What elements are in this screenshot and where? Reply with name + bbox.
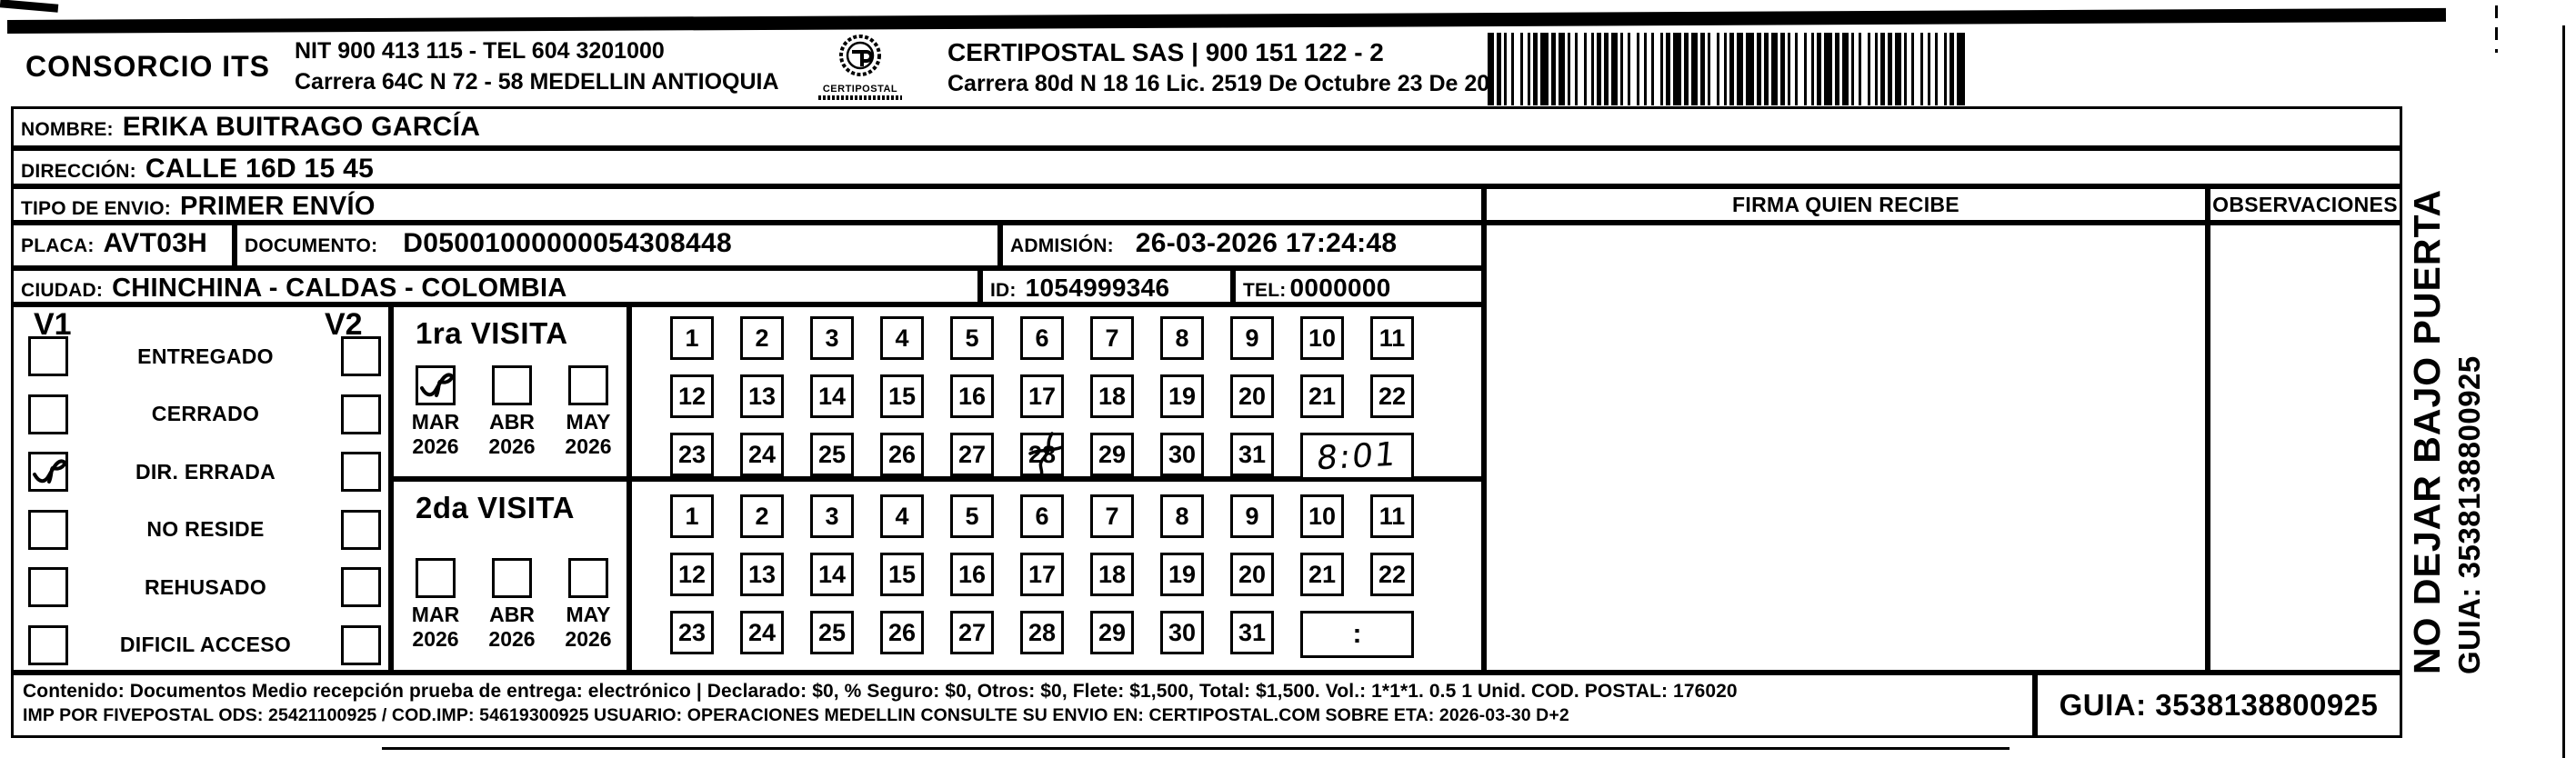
- visit2-day-27[interactable]: 27: [950, 611, 994, 654]
- visit1-months: MAR2026ABR2026MAY2026: [410, 365, 626, 459]
- visit1-day-28[interactable]: 28: [1020, 433, 1064, 476]
- visit2-day-23[interactable]: 23: [670, 611, 714, 654]
- footer-line1: Contenido: Documentos Medio recepción pr…: [14, 675, 2032, 703]
- field-ciudad-label: CIUDAD:: [21, 280, 103, 302]
- field-ciudad-value: CHINCHINA - CALDAS - COLOMBIA: [112, 274, 567, 304]
- visit1-day-13[interactable]: 13: [740, 374, 784, 418]
- v1-checkbox-dir-errada[interactable]: [28, 452, 68, 492]
- visit1-month-may: MAY2026: [563, 365, 614, 459]
- visit2-month-panel: 2da VISITA MAR2026ABR2026MAY2026: [391, 479, 629, 673]
- visit1-day-5[interactable]: 5: [950, 316, 994, 360]
- footer-line2: IMP POR FIVEPOSTAL ODS: 25421100925 / CO…: [14, 703, 2032, 726]
- firma-column-header: FIRMA QUIEN RECIBE: [1484, 186, 2208, 223]
- observaciones-column-header: OBSERVACIONES: [2208, 186, 2402, 223]
- visit1-day-22[interactable]: 22: [1370, 374, 1414, 418]
- field-id: ID: 1054999346: [980, 268, 1233, 304]
- visit2-time-box[interactable]: :: [1300, 611, 1414, 658]
- visit2-day-16[interactable]: 16: [950, 553, 994, 596]
- visit2-day-13[interactable]: 13: [740, 553, 784, 596]
- field-admision: ADMISIÓN: 26-03-2026 17:24:48: [1000, 223, 1484, 268]
- visit2-day-21[interactable]: 21: [1300, 553, 1344, 596]
- month-label: MAR: [412, 410, 459, 434]
- field-admision-label: ADMISIÓN:: [1010, 235, 1114, 257]
- visit2-day-grid: 1234567891011121314151617181920212223242…: [670, 494, 1481, 658]
- signature-area[interactable]: [1484, 223, 2208, 673]
- status-label-dir-errada: DIR. ERRADA: [70, 460, 341, 484]
- visit2-day-2[interactable]: 2: [740, 494, 784, 538]
- side-note-guia: GUIA: 3538138800925: [2452, 107, 2487, 674]
- field-nombre-label: NOMBRE:: [21, 119, 114, 141]
- v2-checkbox-dir-errada[interactable]: [341, 452, 381, 492]
- visit1-day-19[interactable]: 19: [1160, 374, 1204, 418]
- month-label: ABR: [489, 603, 535, 627]
- visit2-day-19[interactable]: 19: [1160, 553, 1204, 596]
- visit2-month-checkbox-may[interactable]: [568, 558, 608, 598]
- barcode: [1488, 33, 1968, 105]
- field-placa-label: PLACA:: [21, 235, 95, 257]
- visit2-day-11[interactable]: 11: [1370, 494, 1414, 538]
- visit1-time-handwritten: 8:01: [1315, 435, 1398, 477]
- delivery-status-panel: V1 V2 ENTREGADOCERRADODIR. ERRADANO RESI…: [11, 304, 391, 673]
- footer-summary: Contenido: Documentos Medio recepción pr…: [11, 673, 2035, 738]
- visit1-day-grid-panel: 1234567891011121314151617181920212223242…: [629, 304, 1484, 479]
- visit1-day-grid: 1234567891011121314151617181920212223242…: [670, 316, 1481, 480]
- visit1-day-3[interactable]: 3: [810, 316, 854, 360]
- status-options: ENTREGADOCERRADODIR. ERRADANO RESIDEREHU…: [14, 336, 388, 665]
- visit1-day-23[interactable]: 23: [670, 433, 714, 476]
- field-id-value: 1054999346: [1026, 274, 1170, 303]
- visit1-day-4[interactable]: 4: [880, 316, 924, 360]
- carrier-logo-caption: CERTIPOSTAL: [815, 84, 906, 95]
- visit2-day-15[interactable]: 15: [880, 553, 924, 596]
- v1-checkbox-rehusado[interactable]: [28, 567, 68, 607]
- visit1-month-abr: ABR2026: [486, 365, 537, 459]
- visit1-day-17[interactable]: 17: [1020, 374, 1064, 418]
- visit2-day-9[interactable]: 9: [1230, 494, 1274, 538]
- guia-number-box: GUIA: 3538138800925: [2035, 673, 2402, 738]
- visit2-day-31[interactable]: 31: [1230, 611, 1274, 654]
- visit1-title: 1ra VISITA: [394, 307, 626, 351]
- field-direccion-value: CALLE 16D 15 45: [145, 154, 374, 185]
- visit2-month-checkbox-mar[interactable]: [416, 558, 456, 598]
- field-placa-value: AVT03H: [104, 228, 208, 259]
- visit2-day-18[interactable]: 18: [1090, 553, 1134, 596]
- carrier-logo-icon: [815, 33, 906, 84]
- visit1-day-1[interactable]: 1: [670, 316, 714, 360]
- month-year: 2026: [488, 627, 535, 652]
- sender-address-line: Carrera 64C N 72 - 58 MEDELLIN ANTIOQUIA: [295, 69, 779, 95]
- visit2-month-checkbox-abr[interactable]: [492, 558, 532, 598]
- visit1-day-25[interactable]: 25: [810, 433, 854, 476]
- visit1-month-mar: MAR2026: [410, 365, 461, 459]
- month-label: MAY: [566, 410, 611, 434]
- visit2-day-1[interactable]: 1: [670, 494, 714, 538]
- scan-top-bar: [7, 8, 2446, 34]
- visit2-months: MAR2026ABR2026MAY2026: [410, 558, 626, 652]
- field-nombre: NOMBRE: ERIKA BUITRAGO GARCÍA: [11, 106, 2402, 148]
- visit1-day-21[interactable]: 21: [1300, 374, 1344, 418]
- field-tel: TEL: 0000000: [1233, 268, 1484, 304]
- visit2-day-17[interactable]: 17: [1020, 553, 1064, 596]
- visit2-day-29[interactable]: 29: [1090, 611, 1134, 654]
- sender-company-name: CONSORCIO ITS: [25, 50, 270, 84]
- carrier-logo: CERTIPOSTAL: [815, 33, 906, 100]
- visit2-title: 2da VISITA: [394, 482, 626, 525]
- visit1-day-15[interactable]: 15: [880, 374, 924, 418]
- visit2-day-6[interactable]: 6: [1020, 494, 1064, 538]
- scan-bottom-stray-line: [382, 747, 2010, 750]
- visit1-day-24[interactable]: 24: [740, 433, 784, 476]
- visit1-day-30[interactable]: 30: [1160, 433, 1204, 476]
- visit2-day-7[interactable]: 7: [1090, 494, 1134, 538]
- visit1-month-checkbox-mar[interactable]: [416, 365, 456, 405]
- v1-checkbox-no-reside[interactable]: [28, 510, 68, 550]
- visit1-day-7[interactable]: 7: [1090, 316, 1134, 360]
- visit1-day-16[interactable]: 16: [950, 374, 994, 418]
- month-label: MAY: [566, 603, 611, 627]
- visit2-day-30[interactable]: 30: [1160, 611, 1204, 654]
- visit1-day-9[interactable]: 9: [1230, 316, 1274, 360]
- status-label-dificil-acceso: DIFICIL ACCESO: [70, 633, 341, 657]
- field-direccion: DIRECCIÓN: CALLE 16D 15 45: [11, 148, 2402, 186]
- side-note-warning: NO DEJAR BAJO PUERTA: [2406, 107, 2449, 674]
- month-year: 2026: [412, 434, 458, 459]
- side-note: NO DEJAR BAJO PUERTA GUIA: 3538138800925: [2406, 107, 2487, 674]
- visit2-day-10[interactable]: 10: [1300, 494, 1344, 538]
- visit2-day-12[interactable]: 12: [670, 553, 714, 596]
- field-tipo-envio: TIPO DE ENVIO: PRIMER ENVÍO: [11, 186, 1484, 223]
- visit1-day-10[interactable]: 10: [1300, 316, 1344, 360]
- month-label: ABR: [489, 410, 535, 434]
- month-year: 2026: [565, 434, 611, 459]
- month-year: 2026: [565, 627, 611, 652]
- v1-checkbox-cerrado[interactable]: [28, 394, 68, 434]
- visit1-time-box[interactable]: 8:01: [1300, 433, 1414, 480]
- month-year: 2026: [488, 434, 535, 459]
- v2-checkbox-rehusado[interactable]: [341, 567, 381, 607]
- v1-checkbox-entregado[interactable]: [28, 336, 68, 376]
- visit2-day-14[interactable]: 14: [810, 553, 854, 596]
- field-placa: PLACA: AVT03H: [11, 223, 235, 268]
- v1-checkbox-dificil-acceso[interactable]: [28, 625, 68, 665]
- visit2-month-may: MAY2026: [563, 558, 614, 652]
- field-documento-label: DOCUMENTO:: [245, 235, 377, 257]
- scan-top-left-smudge: [0, 0, 58, 13]
- visit1-month-checkbox-may[interactable]: [568, 365, 608, 405]
- status-label-cerrado: CERRADO: [70, 402, 341, 426]
- visit2-day-28[interactable]: 28: [1020, 611, 1064, 654]
- field-direccion-label: DIRECCIÓN:: [21, 161, 136, 183]
- visit2-day-grid-panel: 1234567891011121314151617181920212223242…: [629, 479, 1484, 673]
- scan-right-edge-line: [2562, 25, 2565, 758]
- visit2-day-20[interactable]: 20: [1230, 553, 1274, 596]
- status-row-cerrado: CERRADO: [14, 394, 388, 434]
- scan-top-right-dashes: [2495, 5, 2498, 53]
- visit1-day-31[interactable]: 31: [1230, 433, 1274, 476]
- field-tipo-envio-label: TIPO DE ENVIO:: [21, 198, 171, 220]
- visit2-month-mar: MAR2026: [410, 558, 461, 652]
- status-row-rehusado: REHUSADO: [14, 567, 388, 607]
- visit1-month-panel: 1ra VISITA MAR2026ABR2026MAY2026: [391, 304, 629, 479]
- carrier-address-line: Carrera 80d N 18 16 Lic. 2519 De Octubre…: [947, 71, 1515, 97]
- visit1-day-12[interactable]: 12: [670, 374, 714, 418]
- visit2-day-22[interactable]: 22: [1370, 553, 1414, 596]
- status-row-dificil-acceso: DIFICIL ACCESO: [14, 625, 388, 665]
- field-nombre-value: ERIKA BUITRAGO GARCÍA: [123, 112, 481, 143]
- status-label-entregado: ENTREGADO: [70, 344, 341, 369]
- visit1-day-18[interactable]: 18: [1090, 374, 1134, 418]
- field-id-label: ID:: [990, 280, 1017, 302]
- status-row-entregado: ENTREGADO: [14, 336, 388, 376]
- status-row-dir-errada: DIR. ERRADA: [14, 452, 388, 492]
- visit1-day-11[interactable]: 11: [1370, 316, 1414, 360]
- visit1-day-26[interactable]: 26: [880, 433, 924, 476]
- visit2-day-4[interactable]: 4: [880, 494, 924, 538]
- status-label-no-reside: NO RESIDE: [70, 517, 341, 542]
- v2-checkbox-no-reside[interactable]: [341, 510, 381, 550]
- visit2-day-25[interactable]: 25: [810, 611, 854, 654]
- visit1-day-20[interactable]: 20: [1230, 374, 1274, 418]
- visit2-day-8[interactable]: 8: [1160, 494, 1204, 538]
- field-documento: DOCUMENTO: D05001000000054308448: [235, 223, 1000, 268]
- visit1-day-27[interactable]: 27: [950, 433, 994, 476]
- visit1-day-6[interactable]: 6: [1020, 316, 1064, 360]
- month-year: 2026: [412, 627, 458, 652]
- visit2-day-26[interactable]: 26: [880, 611, 924, 654]
- visit2-day-24[interactable]: 24: [740, 611, 784, 654]
- visit2-month-abr: ABR2026: [486, 558, 537, 652]
- visit1-day-2[interactable]: 2: [740, 316, 784, 360]
- v2-checkbox-entregado[interactable]: [341, 336, 381, 376]
- visit1-day-14[interactable]: 14: [810, 374, 854, 418]
- sender-nit-line: NIT 900 413 115 - TEL 604 3201000: [295, 38, 665, 65]
- carrier-title-line: CERTIPOSTAL SAS | 900 151 122 - 2: [947, 38, 1384, 67]
- field-admision-value: 26-03-2026 17:24:48: [1136, 228, 1398, 259]
- visit1-day-29[interactable]: 29: [1090, 433, 1134, 476]
- v2-checkbox-cerrado[interactable]: [341, 394, 381, 434]
- field-tel-value: 0000000: [1289, 274, 1390, 303]
- visit1-day-8[interactable]: 8: [1160, 316, 1204, 360]
- carrier-logo-subtext: [818, 95, 902, 100]
- visit2-day-3[interactable]: 3: [810, 494, 854, 538]
- field-tipo-envio-value: PRIMER ENVÍO: [180, 192, 376, 222]
- field-documento-value: D05001000000054308448: [403, 228, 732, 259]
- v2-checkbox-dificil-acceso[interactable]: [341, 625, 381, 665]
- month-label: MAR: [412, 603, 459, 627]
- field-tel-label: TEL:: [1243, 280, 1286, 302]
- status-row-no-reside: NO RESIDE: [14, 510, 388, 550]
- observations-area[interactable]: [2208, 223, 2402, 673]
- status-label-rehusado: REHUSADO: [70, 575, 341, 600]
- visit2-day-5[interactable]: 5: [950, 494, 994, 538]
- visit1-month-checkbox-abr[interactable]: [492, 365, 532, 405]
- field-ciudad: CIUDAD: CHINCHINA - CALDAS - COLOMBIA: [11, 268, 980, 304]
